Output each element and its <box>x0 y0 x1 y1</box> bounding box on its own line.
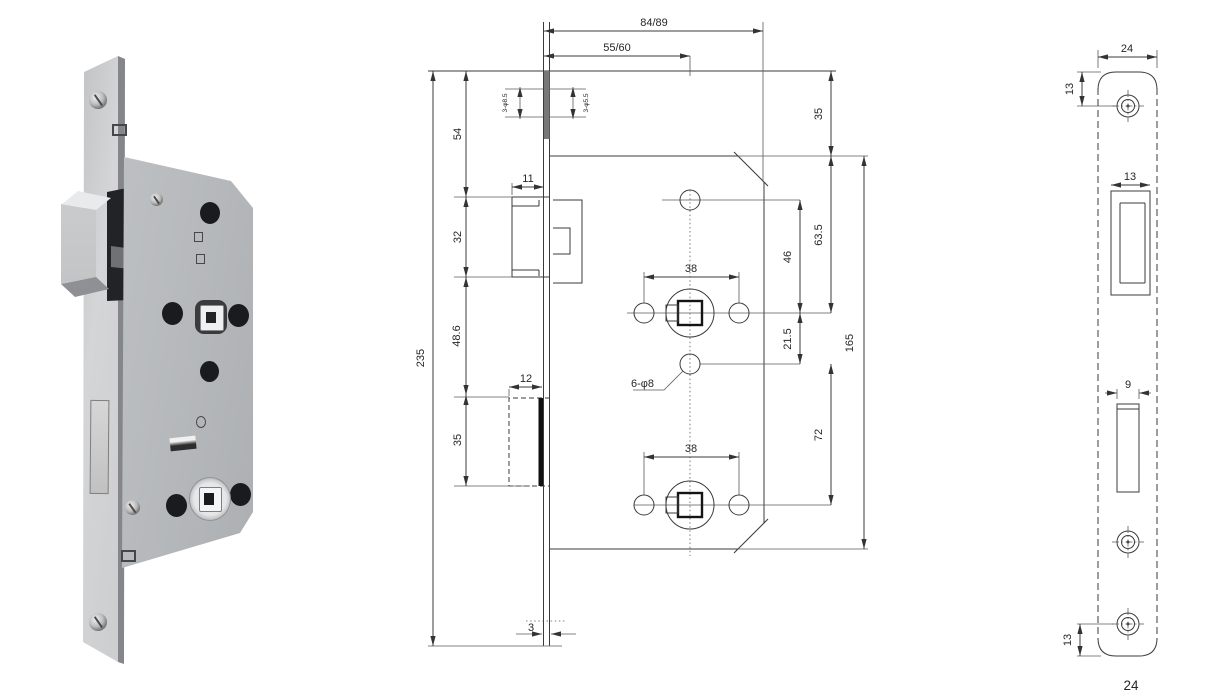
page-number: 24 <box>1123 678 1139 693</box>
screw-note-left: 3-φ8.5 <box>502 93 509 112</box>
faceplate-view: 24 13 13 9 <box>1062 43 1157 656</box>
dim-latch-width-label: 11 <box>522 173 533 185</box>
dim-spindle-to-hole-label: 21.5 <box>782 328 794 349</box>
dim-hole-to-spindle-label: 46 <box>782 251 794 263</box>
dim-deadbolt-width-label: 12 <box>520 373 532 385</box>
plate-top-outline <box>1098 72 1157 90</box>
latch-bolt-body <box>553 200 582 283</box>
dim-hole-to-follower-label: 72 <box>813 429 825 441</box>
dim-latch-height-label: 32 <box>452 231 464 243</box>
case-chamfer-bottom <box>734 519 768 553</box>
dim-case-height-label: 165 <box>844 334 856 352</box>
technical-drawing: 84/89 55/60 3-φ8.5 3-φ5.5 54 32 48.6 35 <box>0 0 1228 700</box>
dim-case-to-spindle-label: 63.5 <box>813 224 825 245</box>
holes-note-label: 6-φ8 <box>631 378 654 390</box>
latch-cutout <box>1111 191 1150 295</box>
dim-total-height-label: 235 <box>415 349 427 367</box>
dim-top-width-label: 84/89 <box>640 17 668 29</box>
dim-span-top-label: 38 <box>685 263 697 275</box>
dim-thickness-label: 3 <box>528 622 534 634</box>
dim-top-margin-label: 35 <box>813 108 825 120</box>
dim-deadbolt-height-label: 35 <box>452 434 464 446</box>
dim-span-bottom-label: 38 <box>685 443 697 455</box>
screw-channel-hatch <box>544 71 550 139</box>
dim-backset-label: 55/60 <box>603 42 631 54</box>
dim-plate-width-label: 24 <box>1121 43 1133 55</box>
dim-deadbolt-cutout-label: 9 <box>1125 379 1131 391</box>
deadbolt-cutout <box>1117 404 1139 492</box>
screw-note-right: 3-φ5.5 <box>583 93 590 112</box>
dim-top-hole-label: 13 <box>1064 83 1076 95</box>
dim-face-top-label: 54 <box>452 128 464 140</box>
latch-outline <box>512 197 550 277</box>
catalog-page: 84/89 55/60 3-φ8.5 3-φ5.5 54 32 48.6 35 <box>0 0 1228 700</box>
dim-mid-spacing-label: 48.6 <box>451 325 463 346</box>
dim-bottom-hole-label: 13 <box>1062 634 1074 646</box>
dim-latch-cutout-label: 13 <box>1124 171 1136 183</box>
section-view: 84/89 55/60 3-φ8.5 3-φ5.5 54 32 48.6 35 <box>415 17 868 646</box>
deadbolt-face <box>539 398 544 486</box>
plate-bottom-outline <box>1098 638 1157 656</box>
